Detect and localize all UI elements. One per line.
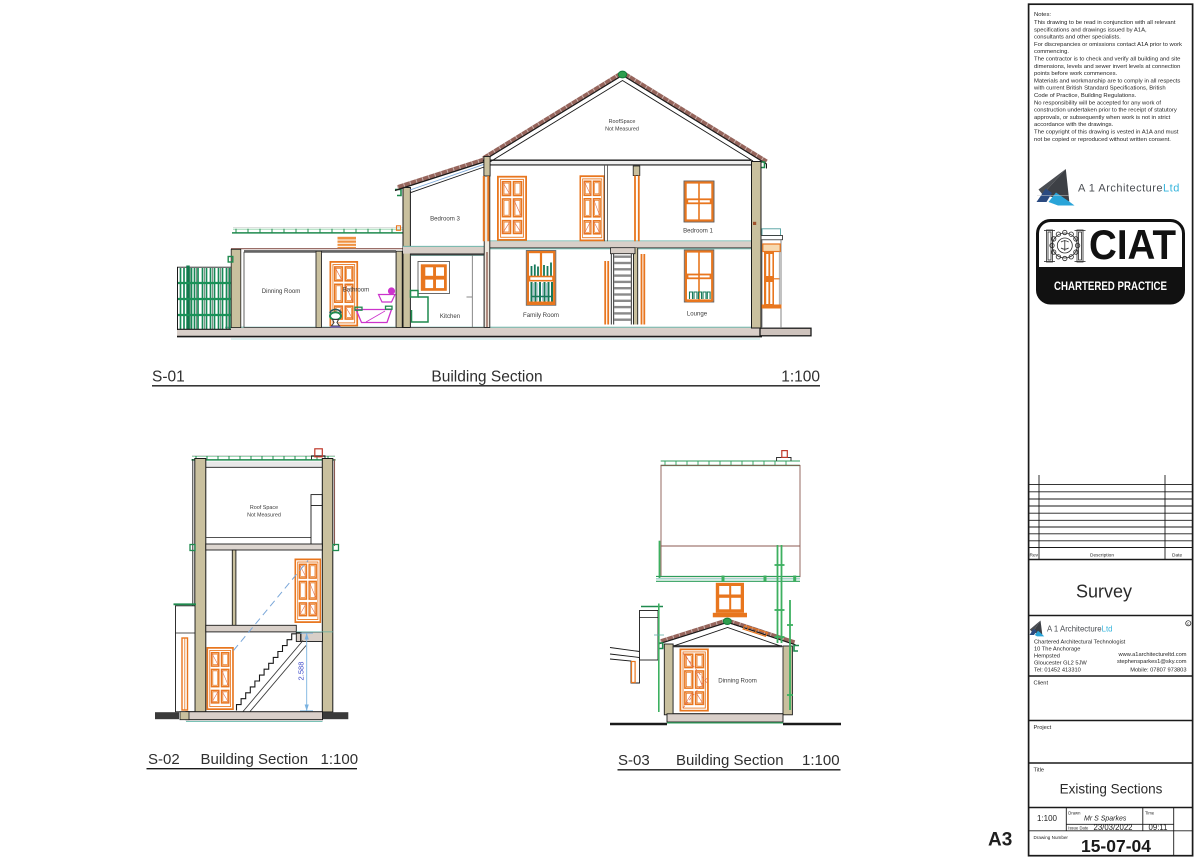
- svg-text:www.a1architectureltd.com: www.a1architectureltd.com: [1118, 652, 1187, 658]
- svg-text:S-01: S-01: [152, 369, 185, 386]
- svg-text:not be copied or reproduced wi: not be copied or reproduced without writ…: [1034, 137, 1171, 143]
- svg-text:Title: Title: [1034, 768, 1045, 774]
- svg-text:Materials and workmanship are: Materials and workmanship are to comply …: [1034, 78, 1180, 84]
- svg-text:Time: Time: [1145, 811, 1155, 816]
- svg-text:S-03: S-03: [618, 752, 650, 769]
- svg-text:Building Section: Building Section: [431, 369, 542, 386]
- svg-text:construction undertaken prior: construction undertaken prior to the rec…: [1034, 108, 1177, 114]
- svg-text:2.588: 2.588: [297, 661, 306, 680]
- svg-text:Building Section: Building Section: [676, 752, 784, 769]
- svg-text:1:100: 1:100: [1037, 814, 1058, 823]
- svg-text:15-07-04: 15-07-04: [1081, 836, 1151, 856]
- svg-text:A 1 ArchitectureLtd: A 1 ArchitectureLtd: [1047, 625, 1112, 634]
- svg-text:consultants and other speciali: consultants and other specialists.: [1034, 35, 1121, 41]
- svg-text:Chartered Architectural Techno: Chartered Architectural Technologist: [1034, 640, 1126, 646]
- svg-text:10 The Anchorage: 10 The Anchorage: [1034, 647, 1080, 653]
- svg-text:Bedroom 3: Bedroom 3: [430, 216, 460, 223]
- svg-text:Not Measured: Not Measured: [605, 127, 639, 133]
- svg-text:Description: Description: [1090, 553, 1114, 559]
- svg-text:09:11: 09:11: [1149, 823, 1168, 832]
- svg-text:points before work commences.: points before work commences.: [1034, 71, 1118, 77]
- svg-text:Mobile: 07807 973803: Mobile: 07807 973803: [1130, 668, 1186, 674]
- svg-text:Lounge: Lounge: [687, 311, 708, 318]
- svg-text:Code of Practice, Building Reg: Code of Practice, Building Regulations.: [1034, 93, 1137, 99]
- svg-text:Kitchen: Kitchen: [440, 313, 460, 320]
- svg-text:The copyright of this drawing: The copyright of this drawing is vested …: [1034, 130, 1179, 136]
- svg-text:S-02: S-02: [148, 751, 180, 768]
- svg-text:23/03/2022: 23/03/2022: [1093, 823, 1132, 832]
- svg-text:Date: Date: [1172, 553, 1182, 559]
- svg-text:Issue Date: Issue Date: [1068, 825, 1089, 830]
- svg-text:Drawn: Drawn: [1068, 811, 1081, 816]
- svg-text:Roof Space: Roof Space: [250, 505, 278, 511]
- svg-text:with current British Standard: with current British Standard Specificat…: [1033, 86, 1166, 92]
- svg-text:Existing Sections: Existing Sections: [1060, 782, 1163, 797]
- svg-text:specifications and drawings is: specifications and drawings issued by A1…: [1034, 27, 1147, 33]
- svg-text:Bedroom 1: Bedroom 1: [683, 228, 713, 235]
- svg-text:Drawing Number: Drawing Number: [1034, 835, 1069, 840]
- svg-text:1:100: 1:100: [321, 751, 359, 768]
- svg-text:approvals, or subsequently: approvals, or subsequently when work is …: [1034, 115, 1171, 121]
- svg-text:Tel: 01452 413310: Tel: 01452 413310: [1034, 668, 1081, 674]
- svg-text:CIAT: CIAT: [1089, 221, 1176, 268]
- svg-text:Bathroom: Bathroom: [343, 287, 369, 294]
- svg-text:A3: A3: [988, 830, 1012, 851]
- svg-text:Dinning Room: Dinning Room: [718, 678, 757, 685]
- svg-text:Not Measured: Not Measured: [247, 513, 281, 519]
- svg-text:RoofSpace: RoofSpace: [609, 119, 636, 125]
- svg-text:stephensparkes1@sky.com: stephensparkes1@sky.com: [1117, 659, 1187, 665]
- svg-text:A 1 ArchitectureLtd: A 1 ArchitectureLtd: [1078, 183, 1180, 195]
- svg-text:Project: Project: [1034, 725, 1052, 731]
- svg-text:Rev: Rev: [1030, 553, 1039, 559]
- svg-text:Gloucester GL2 5JW: Gloucester GL2 5JW: [1034, 661, 1087, 667]
- svg-text:accordance with the drawings.: accordance with the drawings.: [1034, 122, 1114, 128]
- svg-text:Client: Client: [1034, 681, 1049, 687]
- svg-text:This drawing to be read in con: This drawing to be read in conjunction w…: [1034, 20, 1176, 26]
- svg-text:Family Room: Family Room: [523, 312, 559, 319]
- svg-text:Dinning Room: Dinning Room: [262, 288, 301, 295]
- svg-text:For discrepancies or omissions: For discrepancies or omissions contact A…: [1034, 42, 1182, 48]
- svg-text:The contractor is to check and: The contractor is to check and verify al…: [1034, 57, 1181, 63]
- svg-text:No responsibility will be: No responsibility will be accepted for a…: [1034, 100, 1161, 106]
- svg-text:CHARTERED PRACTICE: CHARTERED PRACTICE: [1054, 281, 1167, 293]
- svg-text:Building Section: Building Section: [201, 751, 309, 768]
- svg-text:1:100: 1:100: [781, 369, 820, 386]
- svg-text:dimensions, levels and sewer i: dimensions, levels and sewer invert leve…: [1034, 64, 1180, 70]
- svg-text:Notes:: Notes:: [1034, 12, 1051, 18]
- svg-text:Survey: Survey: [1076, 582, 1132, 602]
- svg-text:Mr S Sparkes: Mr S Sparkes: [1084, 816, 1127, 823]
- svg-text:1:100: 1:100: [802, 752, 840, 769]
- svg-text:commencing.: commencing.: [1034, 49, 1069, 55]
- svg-text:Hempsted: Hempsted: [1034, 654, 1060, 660]
